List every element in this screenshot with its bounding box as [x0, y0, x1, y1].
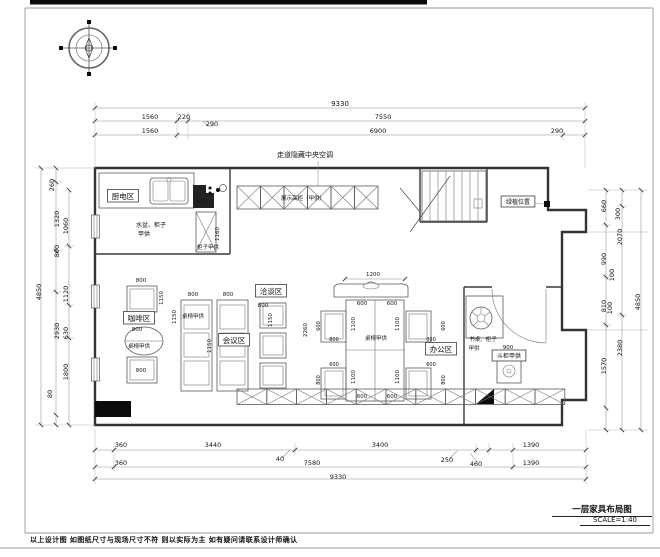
dim-left: 1800 [62, 364, 70, 381]
stairs [400, 171, 486, 232]
zone-label-meeting: 会议区 [223, 335, 246, 345]
desk-icon [466, 296, 503, 338]
drawing-scale: SCALE=1:40 [580, 516, 650, 526]
dim-meeting: 1150 [172, 310, 178, 324]
window-icon [92, 215, 100, 238]
note-coffee-furniture: 桌椅甲供 [128, 342, 151, 350]
note-sink2: 甲供 [138, 230, 150, 238]
zone-label-kitchen: 厨电区 [112, 191, 135, 201]
window-icon [92, 358, 100, 381]
note-cabinet: 柜子甲供 [197, 243, 220, 251]
dim-chair: 600 [329, 362, 339, 368]
dim-bottom: 250 [441, 456, 453, 464]
footer-note: 以上设计图 如图纸尺寸与现场尺寸不符 则以实际为主 如有疑问请联系设计师确认 [30, 535, 298, 545]
dim-top: 1560 [142, 127, 159, 135]
dim-left-total: 4850 [35, 284, 43, 301]
dim-right: 100 [606, 302, 614, 314]
dim-chair: 800 [329, 337, 339, 343]
dim-chair: 600 [316, 321, 322, 331]
console-icon [334, 282, 408, 297]
dim-top-total: 9330 [331, 100, 349, 108]
dim-meeting: 800 [223, 292, 234, 298]
note-dining-furniture: 桌椅甲供 [365, 334, 388, 342]
zone-label-negotiation: 洽谈区 [260, 286, 283, 296]
zone-label-coffee: 咖啡区 [128, 313, 151, 323]
plant-marker [544, 201, 550, 207]
cad-floor-plan-screenshot: 93301560220290755015606900290走道隐藏中央空调360… [0, 0, 660, 557]
dim-coffee: 1150 [159, 291, 165, 305]
dim-top: 220 [178, 113, 190, 121]
dim-left: 80 [46, 390, 54, 398]
leader-lines [95, 121, 494, 463]
dim-coffee: 800 [132, 327, 143, 333]
dim-left: 1320 [53, 211, 61, 228]
dim-chest: 900 [503, 345, 514, 351]
zone-label-office: 办公区 [430, 344, 453, 354]
note-meeting-furniture: 桌椅甲供 [182, 312, 205, 320]
dim-bottom: 360 [115, 441, 127, 449]
dim-coffee: 800 [136, 278, 147, 284]
note-sink: 水盆、柜子 [136, 221, 166, 229]
dim-dining: 600 [357, 301, 368, 307]
dim-left: 1120 [62, 286, 70, 303]
dim-dining: 1100 [395, 370, 401, 384]
dim-right: 300 [614, 208, 622, 220]
dim-dining: 1100 [351, 370, 357, 384]
dim-left: 1060 [62, 218, 70, 235]
dim-chair: 800 [441, 375, 447, 385]
compass-icon [59, 20, 117, 76]
dim-kitchen: 600 [197, 199, 208, 205]
label-central-ac: 走道隐藏中央空调 [277, 150, 333, 159]
dim-top: 6900 [370, 127, 387, 135]
column-block [95, 401, 131, 417]
dim-chair: 600 [426, 362, 436, 368]
dim-dining: 1100 [351, 317, 357, 331]
dim-top: 7550 [375, 113, 392, 121]
dim-left: 630 [62, 327, 70, 339]
note-desk: 书桌、柜子 [469, 335, 497, 343]
dim-bottom: 3400 [372, 441, 389, 449]
dim-meeting: 1150 [207, 339, 213, 353]
dim-top: 290 [551, 127, 563, 135]
dim-right: 2380 [616, 340, 624, 357]
window-icon [92, 285, 100, 308]
dim-dining: 1100 [395, 317, 401, 331]
note-desk2: 甲供 [468, 344, 480, 352]
dim-right: 990 [600, 253, 608, 265]
top-bar [30, 0, 427, 5]
dim-left: 260 [48, 179, 56, 191]
door-arc-icon [492, 289, 546, 343]
dim-coffee: 800 [136, 368, 147, 374]
dim-right: 1570 [600, 358, 608, 375]
dim-kitchen: 1160 [215, 227, 221, 241]
dim-dining: 600 [357, 394, 368, 400]
dim-dining: 2260 [303, 323, 309, 337]
dim-bottom: 40 [276, 455, 284, 463]
dim-bottom: 1390 [523, 441, 540, 449]
dim-chair: 800 [426, 337, 436, 343]
sink-icon [150, 178, 188, 204]
floor-plan-svg: 93301560220290755015606900290走道隐藏中央空调360… [0, 0, 660, 557]
zone-label-chest: 斗柜甲供 [497, 352, 521, 360]
dim-right: 660 [600, 200, 608, 212]
dim-bottom: 360 [115, 459, 127, 467]
chest-icon [497, 360, 521, 383]
dim-chair: 800 [316, 375, 322, 385]
dim-top: 290 [206, 120, 218, 128]
dim-negotiation: 1150 [268, 313, 274, 327]
dim-right: 100 [608, 269, 616, 281]
dim-meeting: 800 [188, 292, 199, 298]
dim-bottom: 460 [470, 460, 482, 468]
dim-left: 800 [53, 245, 61, 257]
dim-dining: 600 [387, 301, 398, 307]
dim-bottom: 7580 [304, 459, 321, 467]
dim-dining: 1200 [366, 272, 380, 278]
dim-bottom-total: 9330 [330, 473, 347, 481]
zone-label-plant: 绿植位置 [506, 198, 530, 206]
dim-right: 2070 [616, 229, 624, 246]
dim-top: 1560 [142, 113, 159, 121]
dim-bottom: 1390 [523, 459, 540, 467]
dim-dining: 600 [387, 394, 398, 400]
note-display-cabinet: 展示高柜（甲供） [281, 194, 325, 202]
kitchen-area [99, 173, 227, 252]
drawing-title: 一层家具布局图 [552, 503, 652, 517]
dim-negotiation: 800 [258, 303, 269, 309]
dim-bottom: 3440 [205, 441, 222, 449]
dim-right-total: 4850 [634, 294, 642, 311]
dim-chair: 600 [441, 321, 447, 331]
dim-left: 2930 [53, 323, 61, 340]
